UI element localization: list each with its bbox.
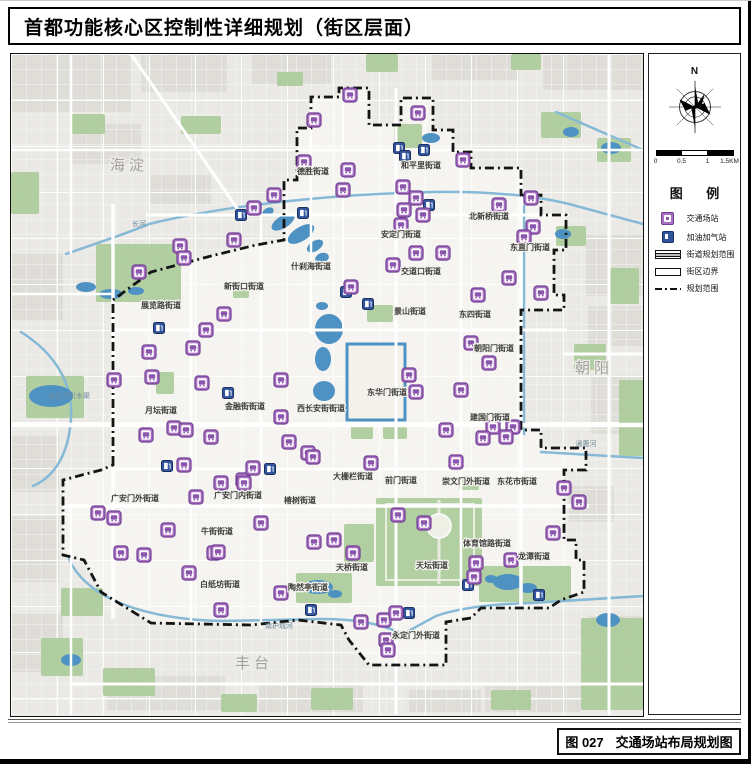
park-area — [103, 668, 155, 696]
scale-tick-label: 1.5KM — [720, 158, 739, 165]
transport-station-icon — [409, 191, 423, 205]
transport-station-icon — [107, 511, 121, 525]
transport-station-icon — [341, 163, 355, 177]
legend-label: 交通场站 — [687, 213, 719, 224]
transport-station-icon — [107, 373, 121, 387]
legend-label: 街区边界 — [687, 266, 719, 277]
street-subdistrict-label: 天桥街道 — [336, 562, 368, 572]
street-subdistrict-label: 东华门街道 — [367, 387, 407, 397]
legend-label: 规划范围 — [687, 283, 719, 294]
transport-station-icon — [274, 586, 288, 600]
document-title-bar: 首都功能核心区控制性详细规划（街区层面） — [8, 7, 741, 45]
transport-station-icon — [504, 553, 518, 567]
block-boundary-swatch — [655, 268, 681, 276]
transport-station-icon — [186, 341, 200, 355]
gas-station-icon — [419, 145, 430, 156]
transport-station-icon — [397, 203, 411, 217]
compass-rose-icon — [666, 78, 724, 136]
street-subdistrict-label: 德胜街道 — [297, 166, 329, 176]
street-subdistrict-label: 月坛街道 — [144, 405, 177, 415]
transport-station-icon — [454, 383, 468, 397]
legend-item-transport-station: 交通场站 — [655, 212, 735, 225]
transport-station-icon — [409, 385, 423, 399]
district-label: 丰台 — [235, 655, 273, 672]
transport-station-icon — [179, 423, 193, 437]
park-area — [71, 114, 105, 134]
lake — [76, 282, 96, 292]
street-scope-swatch — [655, 250, 681, 259]
lake — [313, 381, 335, 401]
street-subdistrict-label: 景山街道 — [394, 306, 426, 316]
street-subdistrict-label: 体育馆路街道 — [463, 538, 511, 548]
transport-station-icon — [177, 458, 191, 472]
scale-bar-segments — [656, 150, 734, 156]
lake — [128, 287, 144, 295]
park-area — [581, 618, 643, 710]
transport-station-icon — [217, 307, 231, 321]
park-area — [366, 54, 398, 72]
street-subdistrict-label: 大栅栏街道 — [333, 471, 373, 481]
street-subdistrict-label: 和平里街道 — [401, 160, 441, 170]
figure-title: 交通场站布局规划图 — [616, 732, 733, 751]
transport-station-icon — [499, 430, 513, 444]
transport-station-icon — [417, 516, 431, 530]
legend-item-block-boundary: 街区边界 — [655, 266, 735, 277]
transport-station-icon — [195, 376, 209, 390]
transport-station-icon — [354, 615, 368, 629]
gas-station-icon — [306, 605, 317, 616]
transport-station-icon — [306, 450, 320, 464]
park-area — [311, 688, 353, 710]
street-subdistrict-label: 龙潭街道 — [517, 551, 550, 561]
gas-station-icon — [534, 590, 545, 601]
legend-label: 加油加气站 — [687, 232, 727, 243]
transport-station-icon — [476, 431, 490, 445]
planning-document-page: 首都功能核心区控制性详细规划（街区层面） 长河永定河引水渠通惠河南护城河海淀朝阳… — [0, 0, 751, 764]
transport-station-icon — [182, 566, 196, 580]
transport-station-icon — [161, 523, 175, 537]
lake — [563, 127, 579, 137]
transport-station-icon — [482, 356, 496, 370]
legend-item-gas-station: 加油加气站 — [655, 231, 735, 243]
transport-station-icon — [386, 258, 400, 272]
map-frame: 长河永定河引水渠通惠河南护城河海淀朝阳丰台德胜街道和平里街道新街口街道安定门街道… — [10, 53, 644, 717]
street-subdistrict-label: 永定门外街道 — [391, 630, 440, 640]
gas-station-icon — [404, 608, 415, 619]
street-subdistrict-label: 东四街道 — [459, 309, 491, 319]
transport-station-icon — [274, 410, 288, 424]
transport-station-icon — [114, 546, 128, 560]
transport-station-icon — [91, 506, 105, 520]
transport-station-icon — [214, 603, 228, 617]
page-title: 首都功能核心区控制性详细规划（街区层面） — [24, 13, 424, 40]
transport-station-icon — [572, 495, 586, 509]
transport-station-icon — [517, 230, 531, 244]
gas-station-swatch — [655, 231, 681, 243]
street-subdistrict-label: 椿树街道 — [284, 495, 316, 505]
park-area — [11, 172, 39, 214]
transport-station-icon — [381, 643, 395, 657]
lake — [485, 575, 497, 583]
north-label: N — [691, 66, 698, 77]
transport-station-icon — [557, 481, 571, 495]
scale-tick-label: 0 — [654, 158, 658, 165]
transport-station-icon — [467, 570, 481, 584]
street-subdistrict-label: 前门街道 — [385, 475, 417, 485]
lake — [555, 229, 571, 239]
transport-station-icon — [247, 201, 261, 215]
page-bottom-border — [0, 759, 751, 764]
legend-item-planning-scope: 规划范围 — [655, 283, 735, 294]
transport-station-icon — [145, 370, 159, 384]
transport-station-icon — [274, 373, 288, 387]
street-subdistrict-label: 广安门内街道 — [214, 490, 262, 500]
scale-segment — [681, 151, 708, 155]
street-subdistrict-label: 天坛街道 — [416, 560, 448, 570]
street-subdistrict-label: 展览路街道 — [140, 300, 181, 310]
transport-station-icon — [267, 188, 281, 202]
transport-station-icon — [139, 428, 153, 442]
park-area — [221, 694, 257, 712]
transport-station-icon — [254, 516, 268, 530]
transport-station-icon — [364, 456, 378, 470]
gas-station-icon — [400, 151, 411, 162]
transport-station-icon — [307, 535, 321, 549]
transport-station-icon — [471, 288, 485, 302]
transport-station-icon — [227, 233, 241, 247]
street-subdistrict-label: 牛街街道 — [201, 526, 233, 536]
transport-station-icon — [307, 113, 321, 127]
transport-station-icon — [177, 251, 191, 265]
park-area — [619, 380, 643, 456]
street-subdistrict-label: 东花市街道 — [497, 476, 537, 486]
transport-station-icon — [214, 476, 228, 490]
transport-station-icon — [343, 88, 357, 102]
lake — [493, 574, 523, 590]
park-area — [609, 268, 639, 304]
street-subdistrict-label: 交道口街道 — [401, 266, 441, 276]
transport-station-icon — [402, 368, 416, 382]
transport-station-icon — [389, 606, 403, 620]
street-subdistrict-label: 新街口街道 — [224, 281, 264, 291]
water-label: 南护城河 — [265, 621, 293, 630]
transport-station-icon — [137, 548, 151, 562]
street-subdistrict-label: 安定门街道 — [381, 229, 421, 239]
gas-station-icon — [154, 323, 165, 334]
gas-station-icon — [298, 208, 309, 219]
street-subdistrict-label: 东直门街道 — [510, 242, 550, 252]
water-label: 长河 — [132, 219, 146, 228]
transport-station-icon — [391, 508, 405, 522]
lake — [328, 590, 342, 598]
transport-station-icon — [327, 533, 341, 547]
legend-item-street-planning-scope: 街道规划范围 — [655, 249, 735, 260]
scale-tick-label: 1 — [706, 158, 710, 165]
lake — [422, 133, 440, 143]
water-label: 通惠河 — [576, 439, 597, 448]
planning-map: 长河永定河引水渠通惠河南护城河海淀朝阳丰台德胜街道和平里街道新街口街道安定门街道… — [11, 54, 643, 716]
lake — [316, 302, 328, 310]
scale-tick-label: 0.5 — [677, 158, 686, 165]
park-area — [491, 690, 531, 710]
park-area — [277, 72, 303, 86]
transport-station-icon — [534, 286, 548, 300]
street-subdistrict-label: 白纸坊街道 — [200, 579, 240, 589]
transport-station-icon — [439, 423, 453, 437]
figure-number: 图 027 — [565, 732, 603, 751]
gas-station-icon — [265, 464, 276, 475]
transport-station-icon — [237, 476, 251, 490]
street-subdistrict-label: 建国门街道 — [469, 412, 510, 422]
footer-strip: 图 027 交通场站布局规划图 — [8, 719, 741, 758]
lake — [315, 347, 331, 371]
transport-station-icon — [199, 323, 213, 337]
transport-station-icon — [396, 180, 410, 194]
transport-station-swatch — [655, 212, 681, 225]
scale-segment — [657, 151, 682, 155]
transport-station-icon — [346, 546, 360, 560]
scale-bar: 0 0.5 1 1.5KM — [656, 150, 734, 167]
street-subdistrict-label: 西长安街街道 — [297, 403, 345, 413]
figure-caption: 图 027 交通场站布局规划图 — [557, 728, 741, 755]
gas-station-icon — [363, 299, 374, 310]
transport-station-icon — [546, 526, 560, 540]
street-subdistrict-label: 朝阳门街道 — [474, 343, 514, 353]
transport-station-icon — [449, 455, 463, 469]
planning-scope-swatch — [655, 288, 681, 290]
gas-station-icon — [223, 388, 234, 399]
park-area — [61, 588, 103, 616]
transport-station-icon — [524, 191, 538, 205]
transport-station-icon — [204, 430, 218, 444]
transport-station-icon — [282, 435, 296, 449]
park-area — [511, 54, 541, 70]
transport-station-icon — [142, 345, 156, 359]
gas-station-icon — [236, 210, 247, 221]
transport-station-icon — [416, 208, 430, 222]
map-sidebar-panel: N 0 0.5 1 1.5KM — [648, 53, 741, 715]
district-label: 海淀 — [110, 157, 148, 174]
transport-station-icon — [336, 183, 350, 197]
gas-station-icon — [162, 461, 173, 472]
water-label: 永定河引水渠 — [48, 391, 90, 400]
street-subdistrict-label: 广安门外街道 — [111, 493, 159, 503]
lake — [601, 142, 621, 154]
transport-station-icon — [409, 246, 423, 260]
district-label: 朝阳 — [575, 360, 613, 377]
street-subdistrict-label: 什刹海街道 — [291, 261, 331, 271]
transport-station-icon — [436, 246, 450, 260]
legend-title: 图 例 — [660, 183, 730, 202]
transport-station-icon — [132, 265, 146, 279]
transport-station-icon — [211, 545, 225, 559]
street-subdistrict-label: 崇文门外街道 — [442, 476, 490, 486]
transport-station-icon — [502, 271, 516, 285]
legend-label: 街道规划范围 — [687, 249, 735, 260]
transport-station-icon — [344, 280, 358, 294]
legend: 交通场站 加油加气站 街道规划范围 街区边界 规划范围 — [655, 212, 735, 294]
scale-labels: 0 0.5 1 1.5KM — [656, 158, 734, 167]
transport-station-icon — [189, 490, 203, 504]
transport-station-icon — [246, 461, 260, 475]
transport-station-icon — [411, 106, 425, 120]
street-subdistrict-label: 金融街街道 — [224, 401, 265, 411]
transport-station-icon — [469, 556, 483, 570]
transport-station-icon — [492, 198, 506, 212]
park-area — [181, 116, 221, 134]
transport-station-icon — [456, 153, 470, 167]
street-subdistrict-label: 北新桥街道 — [469, 211, 509, 221]
street-subdistrict-label: 陶然亭街道 — [288, 582, 328, 592]
scale-segment — [708, 151, 733, 155]
